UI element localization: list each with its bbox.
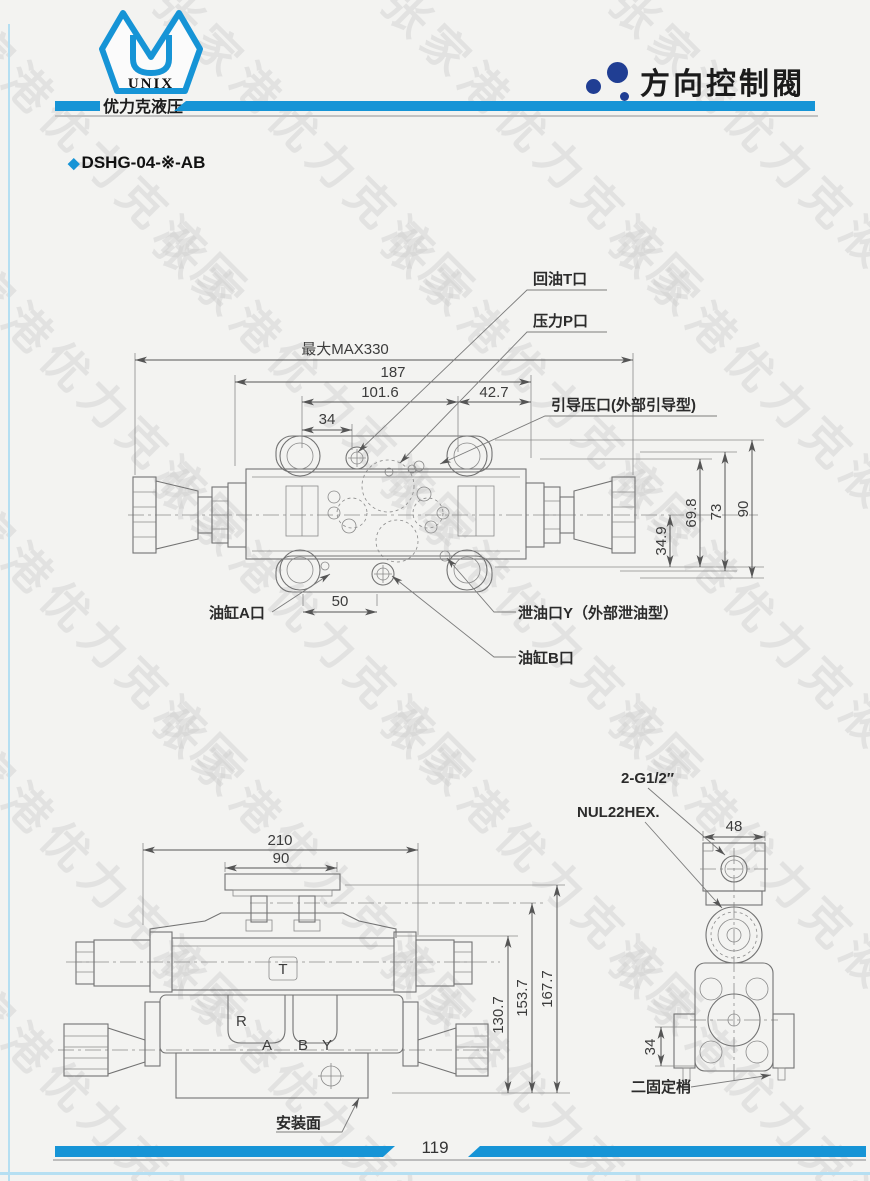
fig1-valve-body <box>246 460 526 562</box>
label-pilot-port: 引导压口(外部引导型) <box>551 396 696 414</box>
page-edge-left <box>8 24 10 1181</box>
figure2-dimensions: 210 90 130.7 153.7 167.7 安装面 <box>143 832 570 1132</box>
label-port-t: T <box>278 961 287 978</box>
header-gray-line <box>55 115 818 117</box>
dim-42-7: 42.7 <box>479 384 508 401</box>
fig2-lower-body: R A B Y <box>145 995 418 1098</box>
dim-187: 187 <box>380 364 405 381</box>
label-pressure-p-port: 压力P口 <box>533 312 588 330</box>
technical-drawings: 最大MAX330 187 101.6 42.7 34 50 34.9 69.8 … <box>0 0 870 1181</box>
label-port-a: A <box>262 1037 272 1054</box>
label-hex-size: NUL22HEX. <box>577 804 660 821</box>
logo-text: UNIX <box>128 76 174 92</box>
dim-101-6: 101.6 <box>361 384 399 401</box>
dim-130-7: 130.7 <box>490 996 507 1034</box>
label-cylinder-b-port: 油缸B口 <box>518 649 574 667</box>
brand-label: 优力克液压 <box>103 93 183 117</box>
dim-34b: 34 <box>642 1039 659 1056</box>
fig1-bottom-flange <box>276 550 492 592</box>
model-code: ◆DSHG-04-※-AB <box>68 153 205 173</box>
label-return-t-port: 回油T口 <box>533 270 587 288</box>
fig1-top-flange <box>276 436 492 476</box>
dim-210: 210 <box>267 832 292 849</box>
figure2-front-view: T R A B Y <box>58 874 545 1098</box>
label-port-r: R <box>236 1013 247 1030</box>
dim-50: 50 <box>332 593 349 610</box>
title-dot-large <box>607 62 628 83</box>
dim-48: 48 <box>726 818 743 835</box>
label-mounting-face: 安装面 <box>276 1114 321 1132</box>
figure1-dimensions: 最大MAX330 187 101.6 42.7 34 50 34.9 69.8 … <box>135 341 764 612</box>
label-port-b: B <box>298 1037 308 1054</box>
figure2-side-view: 48 34 2-G1/2″ NUL22HEX. 二固定梢 <box>577 770 794 1096</box>
diamond-bullet-icon: ◆ <box>68 155 80 172</box>
dim-90: 90 <box>735 501 752 518</box>
page-number: 119 <box>405 1138 465 1158</box>
dim-153-7: 153.7 <box>514 979 531 1017</box>
footer-gray-line <box>53 1159 866 1161</box>
unix-logo-icon: UNIX <box>95 5 209 99</box>
fig2-connector <box>150 874 396 938</box>
title-dot-small <box>620 92 629 101</box>
dim-34: 34 <box>319 411 336 428</box>
dim-69-8: 69.8 <box>683 498 700 527</box>
label-cylinder-a-port: 油缸A口 <box>209 604 265 622</box>
page-title: 方向控制閥 <box>640 59 805 103</box>
label-fixing-pins: 二固定梢 <box>631 1078 691 1096</box>
dim-90b: 90 <box>273 850 290 867</box>
label-drain-y-port: 泄油口Y（外部泄油型） <box>518 604 678 622</box>
dim-73: 73 <box>708 504 725 521</box>
fig2-upper-solenoids <box>76 940 472 986</box>
dim-max330: 最大MAX330 <box>301 341 389 358</box>
footer-bar-left <box>55 1146 395 1157</box>
dim-167-7: 167.7 <box>539 970 556 1008</box>
footer-bar-right <box>468 1146 866 1157</box>
dim-34-9: 34.9 <box>653 526 670 555</box>
model-code-text: DSHG-04-※-AB <box>82 153 206 172</box>
title-dot-medium <box>586 79 601 94</box>
label-thread-size: 2-G1/2″ <box>621 770 674 787</box>
label-port-y: Y <box>322 1037 332 1054</box>
page-edge-bottom <box>0 1172 870 1175</box>
header-bar-short <box>55 101 100 111</box>
